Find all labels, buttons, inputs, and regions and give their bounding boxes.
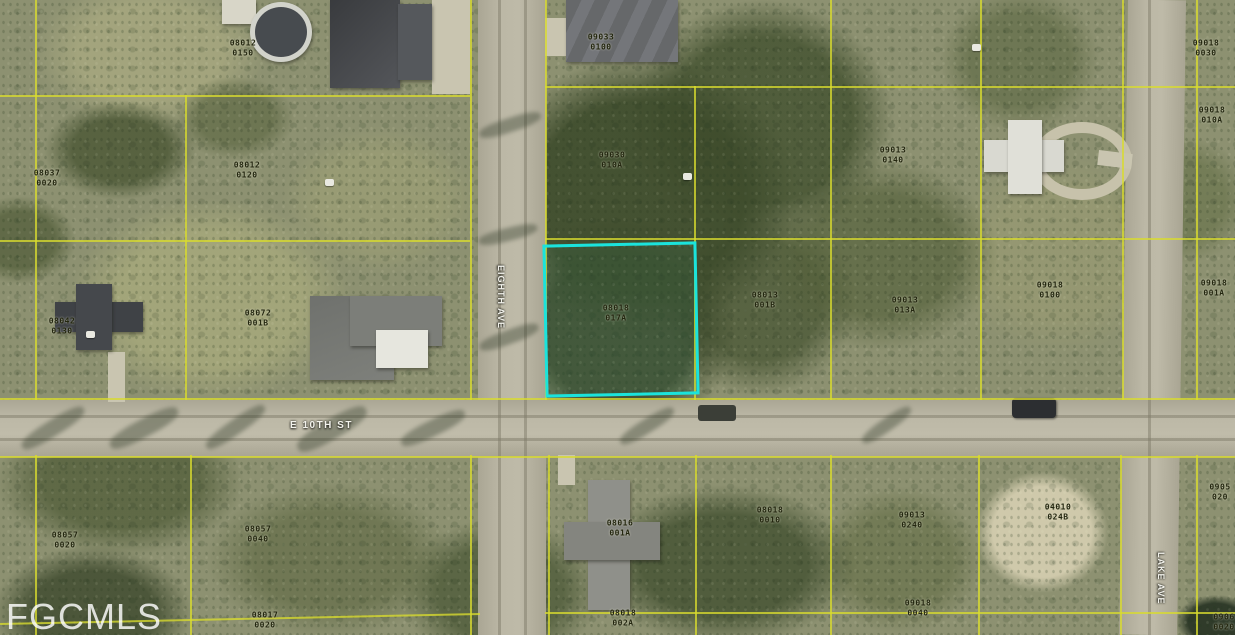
parcel-label: 090130240 bbox=[899, 510, 926, 529]
vehicle bbox=[1012, 398, 1056, 418]
parcel-label: 08016001A bbox=[607, 518, 634, 537]
house-roof-white bbox=[1008, 120, 1042, 194]
street-label-e-10th-st: E 10TH ST bbox=[290, 420, 353, 431]
ground-marker bbox=[683, 173, 692, 180]
parcel-label: 080170020 bbox=[252, 610, 279, 629]
highlighted-parcel-label: 08018017A bbox=[603, 303, 630, 322]
vehicle bbox=[698, 405, 736, 421]
driveway bbox=[558, 455, 575, 485]
pool-deck bbox=[222, 0, 256, 24]
road-track bbox=[1148, 0, 1151, 635]
street-label-eighth-ave: EIGHTH AVE bbox=[496, 265, 506, 329]
ground-marker bbox=[86, 331, 95, 338]
mls-watermark: FGCMLS bbox=[6, 596, 162, 635]
road-track bbox=[0, 438, 1235, 441]
parcel-label: 080120150 bbox=[230, 38, 257, 57]
parcel-label: 080570020 bbox=[52, 530, 79, 549]
round-pool bbox=[250, 2, 312, 62]
driveway bbox=[432, 0, 470, 94]
driveway bbox=[108, 352, 125, 402]
parcel-label: 08013001B bbox=[752, 290, 779, 309]
driveway bbox=[545, 18, 567, 56]
ground-marker bbox=[972, 44, 981, 51]
parcel-label: 09013013A bbox=[892, 295, 919, 314]
street-label-lake-ave: LAKE AVE bbox=[1156, 552, 1166, 605]
house-roof bbox=[398, 4, 432, 80]
house-roof bbox=[330, 0, 400, 88]
parcel-label: 080120120 bbox=[234, 160, 261, 179]
parcel-label: 080420130 bbox=[49, 316, 76, 335]
house-roof bbox=[76, 284, 112, 350]
parcel-label: 090130140 bbox=[880, 145, 907, 164]
parcel-label: 090180040 bbox=[905, 598, 932, 617]
parcel-label: 080570040 bbox=[245, 524, 272, 543]
ground-marker bbox=[325, 179, 334, 186]
parcel-label: 09018001A bbox=[1201, 278, 1228, 297]
parcel-label: 090180030 bbox=[1193, 38, 1220, 57]
eighth-ave-road bbox=[478, 0, 546, 635]
road-track bbox=[524, 0, 527, 635]
parcel-label: 0905020 bbox=[1209, 482, 1230, 501]
parcel-label: 090180100 bbox=[1037, 280, 1064, 299]
parcel-label: 08018002A bbox=[610, 608, 637, 627]
parcel-label: 09060020 bbox=[1213, 612, 1234, 631]
aerial-parcel-map: E 10TH ST EIGHTH AVE LAKE AVE 0801201500… bbox=[0, 0, 1235, 635]
garage-roof-white bbox=[376, 330, 428, 368]
parcel-label: 080180010 bbox=[757, 505, 784, 524]
house-roof bbox=[566, 0, 678, 62]
parcel-label: 080370020 bbox=[34, 168, 61, 187]
lake-ave-road bbox=[1119, 0, 1186, 635]
parcel-label: 08072001B bbox=[245, 308, 272, 327]
parcel-label: 090330100 bbox=[588, 32, 615, 51]
parcel-label: 09030010A bbox=[599, 150, 626, 169]
parcel-label: 04010024B bbox=[1045, 502, 1072, 521]
parcel-label: 09018010A bbox=[1199, 105, 1226, 124]
